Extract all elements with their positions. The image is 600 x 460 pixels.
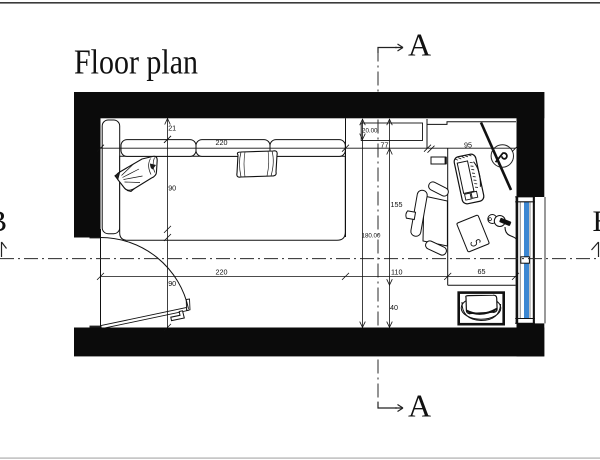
svg-text:65: 65 xyxy=(478,267,486,276)
svg-text:77: 77 xyxy=(381,140,389,149)
svg-text:B: B xyxy=(593,205,600,238)
svg-text:A: A xyxy=(408,388,431,424)
svg-text:90: 90 xyxy=(168,279,176,288)
svg-text:220: 220 xyxy=(216,138,228,147)
svg-text:B: B xyxy=(0,205,7,238)
svg-text:220: 220 xyxy=(216,268,228,277)
svg-text:40: 40 xyxy=(390,303,398,312)
svg-text:20.00: 20.00 xyxy=(362,127,378,134)
svg-text:21: 21 xyxy=(168,124,176,133)
svg-text:Floor plan: Floor plan xyxy=(74,43,198,82)
svg-text:180.00: 180.00 xyxy=(362,232,381,239)
svg-text:A: A xyxy=(408,27,431,63)
svg-text:95: 95 xyxy=(464,140,472,149)
svg-text:90: 90 xyxy=(168,184,176,193)
svg-text:155: 155 xyxy=(391,200,403,209)
svg-text:110: 110 xyxy=(391,268,402,277)
